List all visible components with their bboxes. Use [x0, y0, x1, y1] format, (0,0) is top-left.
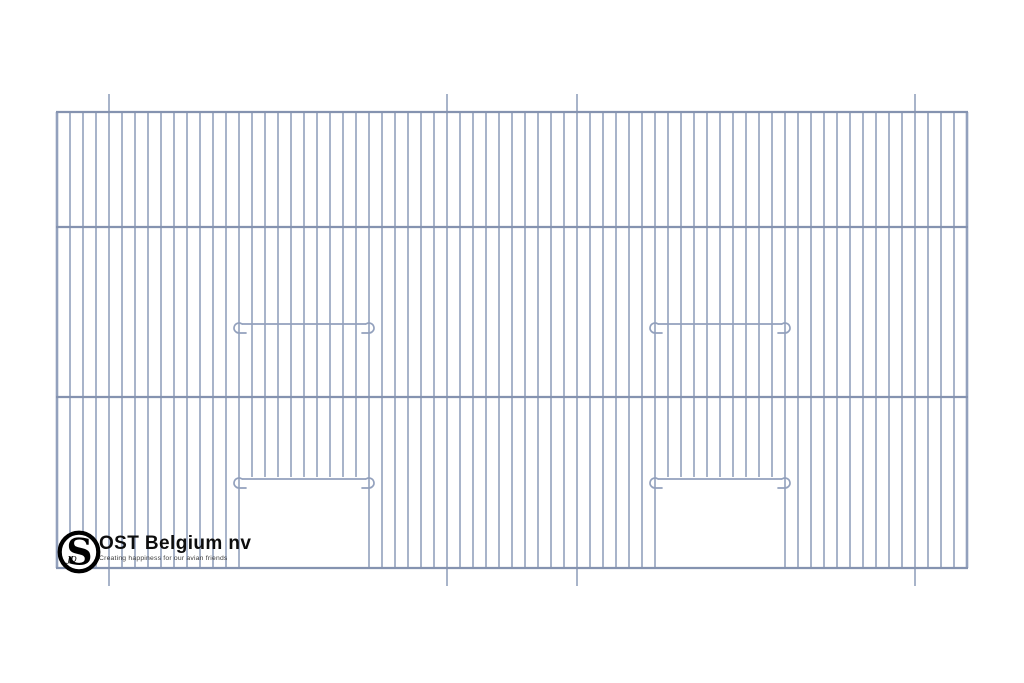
- brand-monogram-icon: S JD: [56, 529, 102, 575]
- brand-logo: S JD OST Belgium nv Creating happiness f…: [56, 529, 251, 575]
- cage-front-drawing: [0, 0, 1024, 683]
- brand-text-block: OST Belgium nv Creating happiness for ou…: [99, 529, 251, 562]
- vertical-bars: [57, 94, 967, 586]
- brand-tagline: Creating happiness for our avian friends: [99, 555, 251, 562]
- monogram-subletters: JD: [65, 555, 77, 564]
- product-image: S JD OST Belgium nv Creating happiness f…: [0, 0, 1024, 683]
- monogram-letter: S: [67, 532, 93, 574]
- brand-name: OST Belgium nv: [99, 533, 251, 554]
